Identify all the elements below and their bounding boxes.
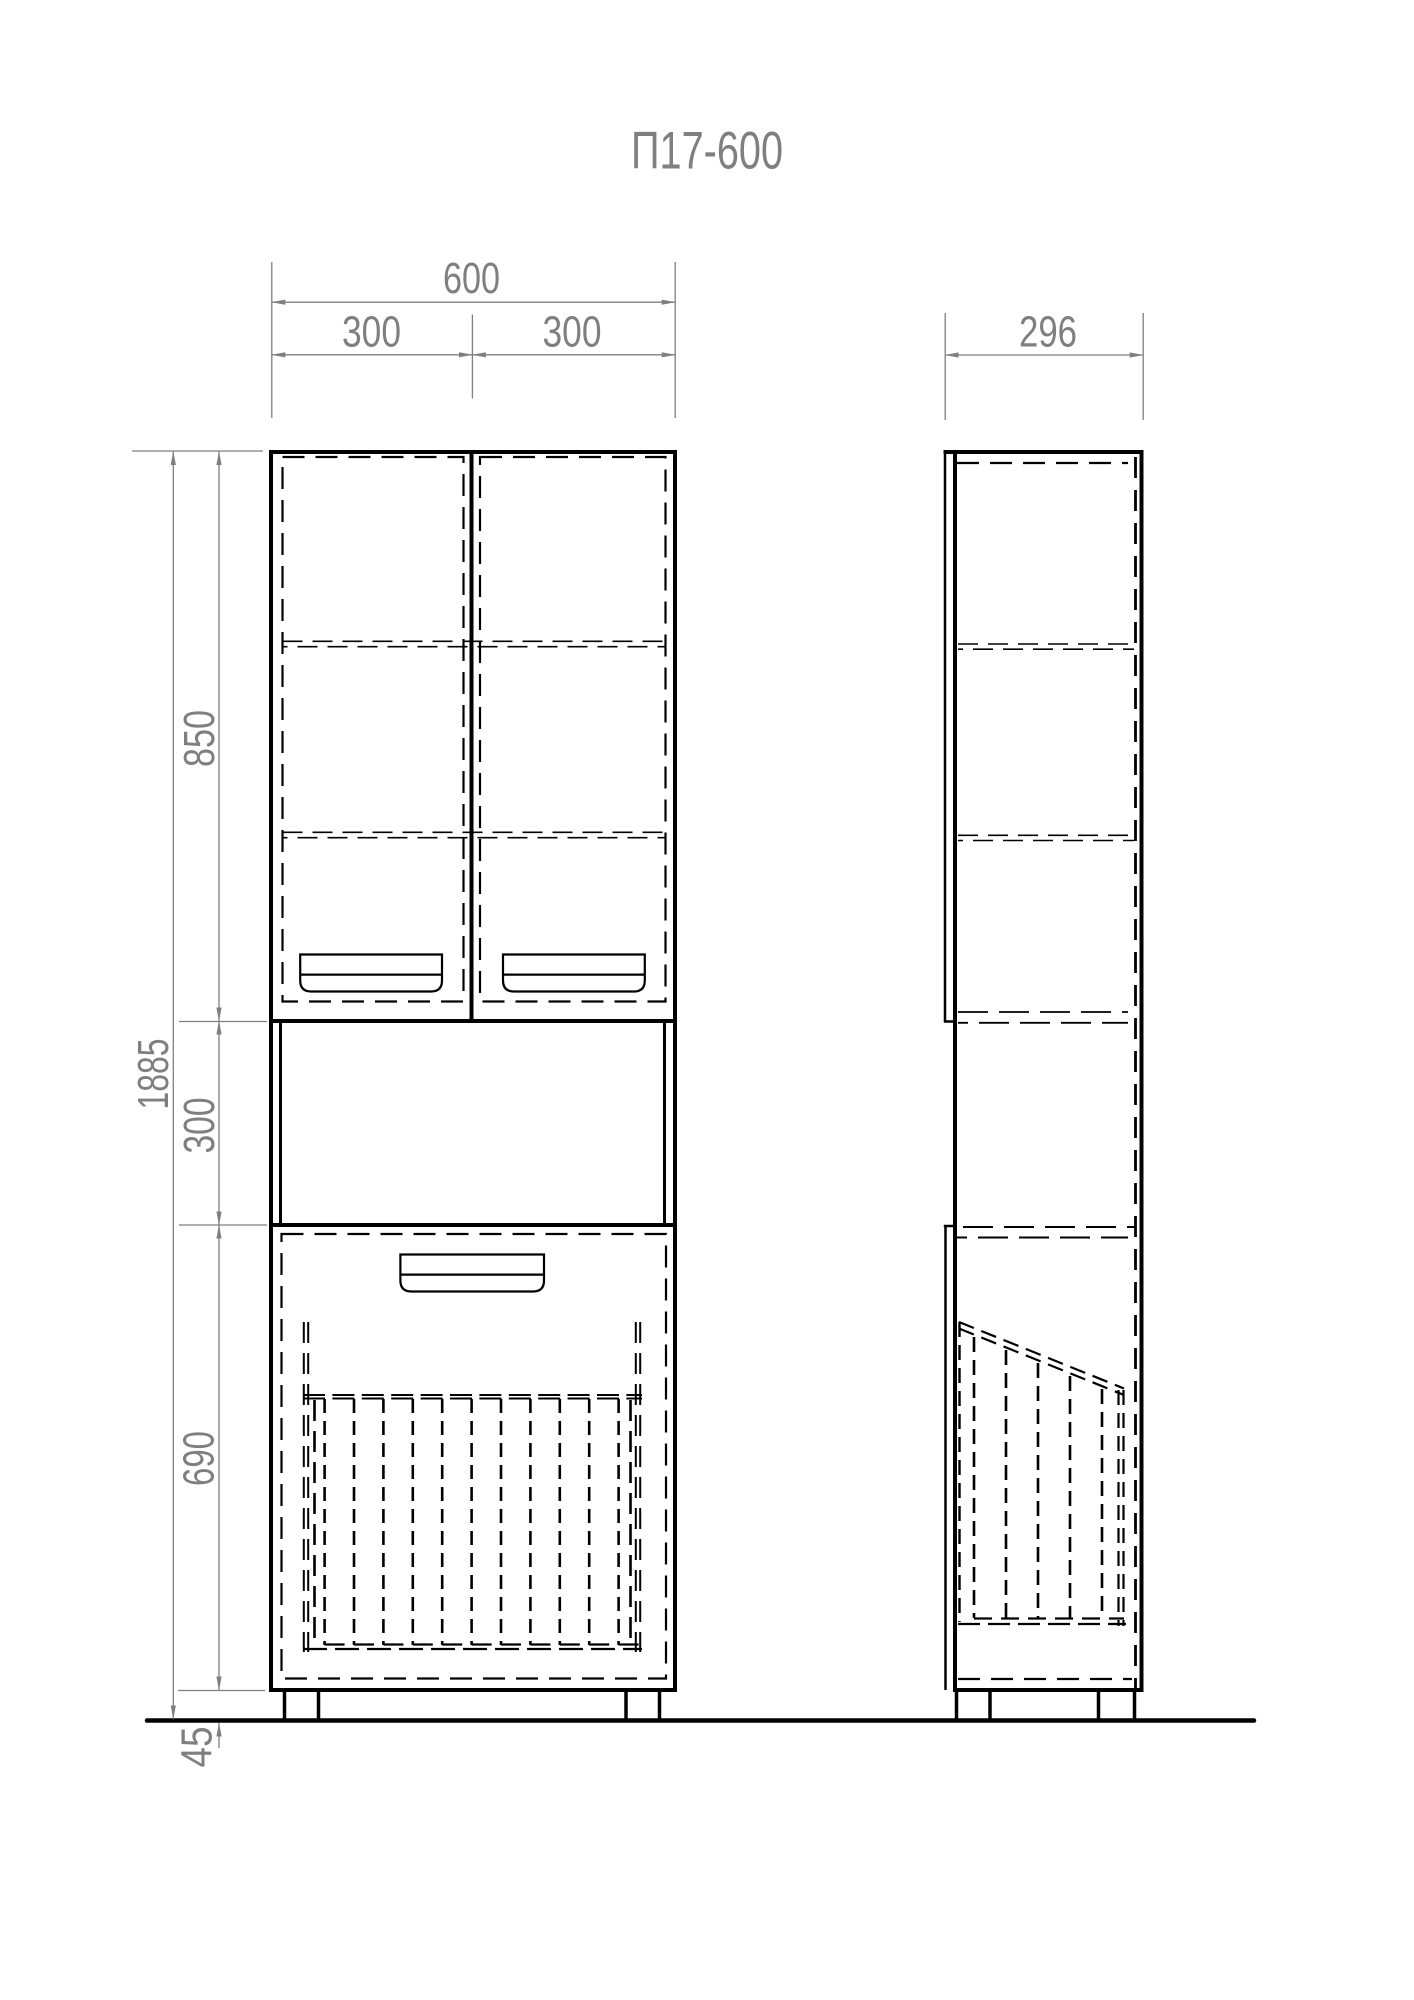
svg-text:300: 300 <box>342 308 401 357</box>
svg-text:600: 600 <box>443 254 500 303</box>
svg-text:690: 690 <box>175 1431 224 1486</box>
svg-text:296: 296 <box>1019 308 1077 357</box>
svg-text:850: 850 <box>175 710 224 767</box>
svg-text:1885: 1885 <box>129 1039 178 1110</box>
svg-text:П17-600: П17-600 <box>631 122 783 181</box>
svg-text:45: 45 <box>173 1727 222 1768</box>
svg-text:300: 300 <box>543 308 602 357</box>
svg-text:300: 300 <box>175 1098 224 1154</box>
